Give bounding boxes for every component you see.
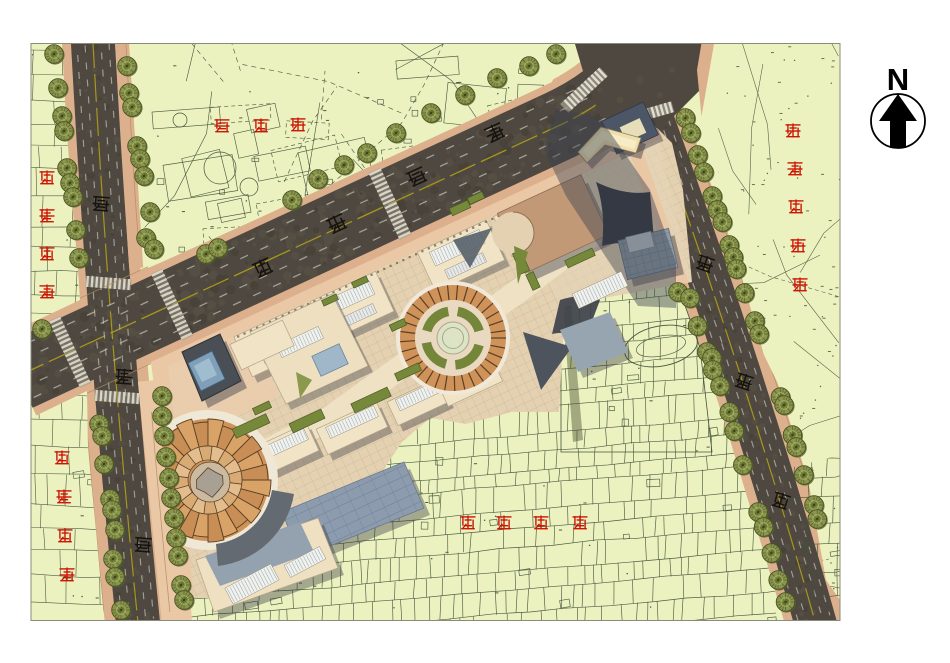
svg-text:N: N bbox=[887, 62, 909, 97]
